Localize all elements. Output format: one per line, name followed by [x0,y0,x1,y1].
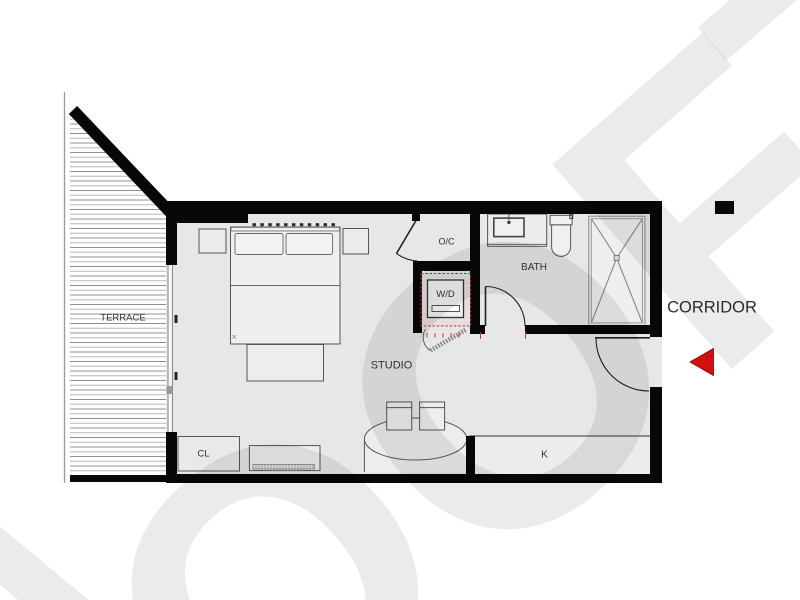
svg-text:TERRACE: TERRACE [100,313,145,324]
